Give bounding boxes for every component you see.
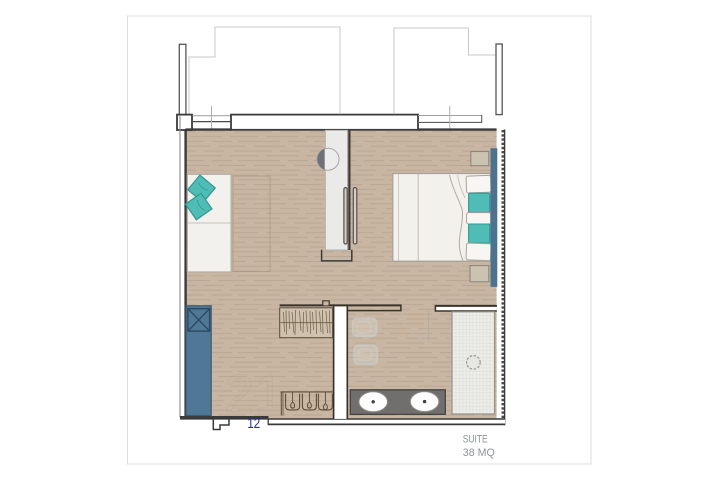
svg-text:21: 21 xyxy=(224,364,284,424)
svg-text:SUITE: SUITE xyxy=(463,434,488,446)
svg-text:38 MQ: 38 MQ xyxy=(463,447,495,459)
